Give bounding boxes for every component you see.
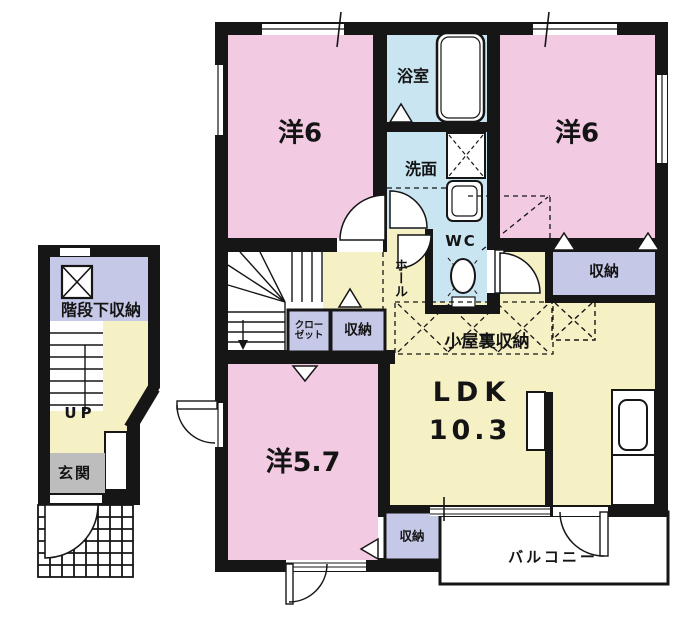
label-bedroom-top-left: 洋6 (278, 120, 322, 147)
under-stair-cross-box (62, 266, 92, 298)
kitchen-sink-icon (619, 400, 647, 450)
label-balcony: バルコニー (508, 550, 598, 566)
floor-plan-canvas: 洋6 洋6 浴室 洗面 WC ホール 収納 クローゼット 収納 小屋裏収納 LD… (0, 0, 682, 633)
label-closet: クローゼット (295, 321, 324, 341)
label-hall: ホール (392, 259, 406, 298)
shoe-cabinet (105, 432, 127, 490)
bathtub-icon (437, 33, 484, 122)
label-ldk: LDK (433, 379, 512, 407)
label-entrance: 玄関 (58, 466, 92, 482)
label-storage-bottom: 収納 (399, 529, 424, 542)
label-attic-storage: 小屋裏収納 (445, 334, 530, 352)
entry-plan (38, 245, 161, 577)
label-bedroom-top-right: 洋6 (555, 120, 599, 147)
label-under-stair-storage: 階段下収納 (61, 303, 141, 320)
label-storage-middle: 収納 (344, 324, 372, 339)
label-wc: WC (445, 234, 477, 250)
wash-basin-icon (447, 181, 482, 221)
label-ldk-size: 10.3 (429, 417, 512, 445)
washing-machine-icon (447, 133, 485, 178)
label-closet-line2: ゼット (295, 330, 324, 341)
label-stairs-up: UP (64, 406, 95, 422)
label-bedroom-bottom: 洋5.7 (266, 449, 341, 477)
label-bathroom: 浴室 (397, 69, 429, 86)
label-washroom: 洗面 (405, 162, 437, 179)
label-storage-right: 収納 (589, 264, 619, 280)
